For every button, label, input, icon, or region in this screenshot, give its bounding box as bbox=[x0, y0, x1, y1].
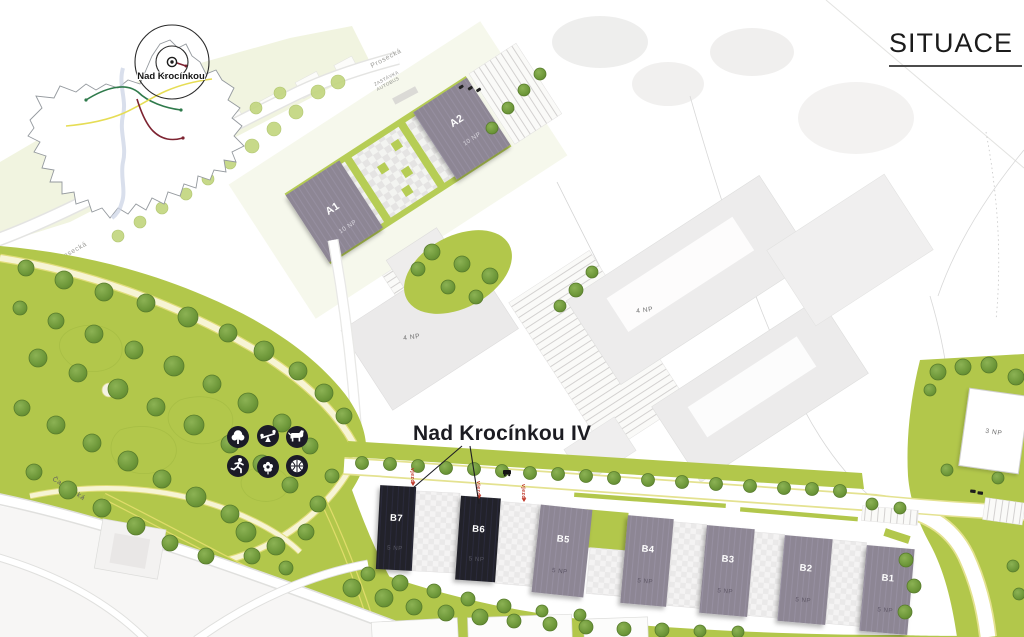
tree-icon bbox=[325, 469, 339, 483]
tree-icon bbox=[907, 579, 921, 593]
tree-icon bbox=[899, 553, 913, 567]
tree-icon bbox=[454, 256, 470, 272]
tree-icon bbox=[267, 537, 285, 555]
building-b4-floors: 5 NP bbox=[637, 577, 653, 585]
tree-icon bbox=[361, 567, 375, 581]
tree-icon bbox=[1007, 560, 1019, 572]
tree-icon bbox=[469, 290, 483, 304]
tree-icon bbox=[29, 349, 47, 367]
tree-icon bbox=[289, 362, 307, 380]
tree-icon bbox=[710, 478, 723, 491]
building-b6-floors: 5 NP bbox=[468, 555, 484, 563]
tree-icon bbox=[580, 470, 593, 483]
tree-icon bbox=[198, 548, 214, 564]
tree-icon bbox=[125, 341, 143, 359]
tree-icon bbox=[486, 122, 498, 134]
tree-icon bbox=[289, 105, 303, 119]
tree-icon bbox=[608, 472, 621, 485]
site-plan-canvas: 4 NP 4 NP A1 10 NP A2 10 NP ZASTÁVKAAUTO… bbox=[0, 0, 1024, 637]
tree-icon bbox=[1008, 369, 1024, 385]
tree-icon bbox=[676, 476, 689, 489]
page-title: SITUACE bbox=[889, 30, 1022, 57]
tree-icon bbox=[14, 400, 30, 416]
building-b4-label: B4 bbox=[641, 544, 655, 556]
tree-icon bbox=[279, 561, 293, 575]
tree-icon bbox=[59, 481, 77, 499]
tree-icon bbox=[732, 626, 744, 637]
tree-icon bbox=[569, 283, 583, 297]
tree-icon bbox=[898, 605, 912, 619]
building-b3: B3 5 NP bbox=[699, 525, 754, 617]
tree-icon bbox=[617, 622, 631, 636]
tree-icon bbox=[203, 375, 221, 393]
tree-icon bbox=[586, 266, 598, 278]
playground-icon bbox=[257, 425, 279, 447]
dog-icon bbox=[286, 426, 308, 448]
tree-icon bbox=[552, 468, 565, 481]
tree-icon bbox=[778, 482, 791, 495]
tree-icon bbox=[411, 262, 425, 276]
tree-icon bbox=[186, 487, 206, 507]
svg-text:vjezd: vjezd bbox=[520, 484, 526, 499]
tree-icon bbox=[536, 605, 548, 617]
tree-icon bbox=[507, 614, 521, 628]
tree-icon bbox=[221, 505, 239, 523]
tree-icon bbox=[26, 464, 42, 480]
tree-icon bbox=[184, 415, 204, 435]
tree-icon bbox=[310, 496, 326, 512]
tree-icon bbox=[18, 260, 34, 276]
tree-icon bbox=[178, 307, 198, 327]
tree-icon bbox=[554, 300, 566, 312]
tree-icon bbox=[924, 384, 936, 396]
tree-icon bbox=[282, 477, 298, 493]
tree-icon bbox=[694, 625, 706, 637]
tree-icon bbox=[315, 384, 333, 402]
building-b6: B6 5 NP bbox=[455, 496, 501, 583]
tree-icon bbox=[642, 474, 655, 487]
inset-location-label: Nad Krocínkou bbox=[137, 71, 205, 82]
tree-icon bbox=[108, 379, 128, 399]
tree-icon bbox=[941, 464, 953, 476]
building-b3-floors: 5 NP bbox=[717, 587, 733, 595]
flower-icon bbox=[257, 456, 279, 478]
tree-icon bbox=[127, 517, 145, 535]
tree-icon bbox=[866, 498, 878, 510]
tree-icon bbox=[13, 301, 27, 315]
building-b6-label: B6 bbox=[472, 524, 486, 536]
project-title: Nad Krocínkou IV bbox=[413, 422, 591, 445]
tree-icon bbox=[336, 408, 352, 424]
tree-icon bbox=[375, 589, 393, 607]
tree-icon bbox=[894, 502, 906, 514]
tree-icon bbox=[250, 102, 262, 114]
tree-icon bbox=[497, 599, 511, 613]
tree-icon bbox=[343, 579, 361, 597]
tree-icon bbox=[461, 592, 475, 606]
tree-icon bbox=[543, 617, 557, 631]
tree-icon bbox=[502, 102, 514, 114]
tree-icon bbox=[147, 398, 165, 416]
tree-icon bbox=[834, 485, 847, 498]
tree-icon bbox=[55, 271, 73, 289]
tree-icon bbox=[245, 139, 259, 153]
tree-icon bbox=[655, 623, 669, 637]
tree-icon bbox=[472, 609, 488, 625]
tree-icon bbox=[162, 535, 178, 551]
tree-icon bbox=[95, 283, 113, 301]
building-b5: B5 5 NP bbox=[532, 505, 593, 598]
tree-icon bbox=[118, 451, 138, 471]
tree-icon bbox=[236, 522, 256, 542]
tree-icon bbox=[574, 609, 586, 621]
tree-icon bbox=[274, 87, 286, 99]
tree-icon bbox=[311, 85, 325, 99]
tree-icon bbox=[356, 457, 369, 470]
tree-icon bbox=[153, 470, 171, 488]
tree-icon bbox=[164, 356, 184, 376]
tree-icon bbox=[48, 313, 64, 329]
tree-icon bbox=[424, 244, 440, 260]
tree-icon bbox=[981, 357, 997, 373]
building-b7-floors: 5 NP bbox=[387, 545, 403, 553]
building-b4: B4 5 NP bbox=[620, 515, 673, 607]
tree-icon bbox=[69, 364, 87, 382]
tree-icon bbox=[384, 458, 397, 471]
tree-icon bbox=[331, 75, 345, 89]
tree-icon bbox=[137, 294, 155, 312]
building-b2-label: B2 bbox=[799, 563, 813, 575]
building-b2-floors: 5 NP bbox=[795, 596, 811, 604]
building-b3-label: B3 bbox=[721, 554, 735, 566]
tree-icon bbox=[579, 620, 593, 634]
building-b1-label: B1 bbox=[881, 573, 895, 585]
building-b7: B7 5 NP bbox=[376, 485, 416, 571]
building-b1-floors: 5 NP bbox=[877, 606, 893, 614]
tree-icon bbox=[744, 480, 757, 493]
tree-icon bbox=[930, 364, 946, 380]
tree-icon bbox=[227, 426, 249, 448]
location-marker-icon bbox=[167, 57, 176, 66]
building-b2: B2 5 NP bbox=[777, 535, 832, 625]
tree-icon bbox=[806, 483, 819, 496]
tree-icon bbox=[438, 605, 454, 621]
building-existing-north: 3 NP bbox=[959, 388, 1024, 474]
svg-text:vjezd: vjezd bbox=[409, 468, 415, 483]
tree-icon bbox=[156, 202, 168, 214]
runner-icon bbox=[227, 455, 249, 477]
tree-icon bbox=[238, 393, 258, 413]
tree-icon bbox=[112, 230, 124, 242]
tree-icon bbox=[47, 416, 65, 434]
tree-icon bbox=[955, 359, 971, 375]
tree-icon bbox=[524, 467, 537, 480]
tree-icon bbox=[441, 280, 455, 294]
tree-icon bbox=[93, 499, 111, 517]
tree-icon bbox=[992, 472, 1004, 484]
tree-icon bbox=[392, 575, 408, 591]
tree-icon bbox=[219, 324, 237, 342]
tree-icon bbox=[134, 216, 146, 228]
basketball-icon bbox=[286, 455, 308, 477]
tree-icon bbox=[534, 68, 546, 80]
tree-icon bbox=[298, 524, 314, 540]
tree-icon bbox=[267, 122, 281, 136]
tree-icon bbox=[254, 341, 274, 361]
tree-icon bbox=[1013, 588, 1024, 600]
tree-icon bbox=[427, 584, 441, 598]
tree-icon bbox=[244, 548, 260, 564]
tree-icon bbox=[83, 434, 101, 452]
tree-icon bbox=[482, 268, 498, 284]
tree-icon bbox=[518, 84, 530, 96]
page-title-block: SITUACE bbox=[889, 30, 1022, 67]
tree-icon bbox=[406, 599, 422, 615]
building-b7-label: B7 bbox=[390, 513, 404, 525]
tree-icon bbox=[85, 325, 103, 343]
site-plan-page: 4 NP 4 NP A1 10 NP A2 10 NP ZASTÁVKAAUTO… bbox=[0, 0, 1024, 637]
building-b5-label: B5 bbox=[556, 533, 570, 545]
